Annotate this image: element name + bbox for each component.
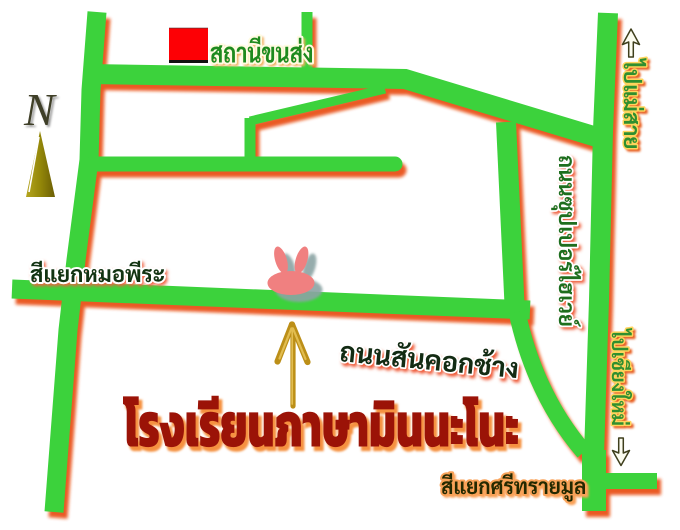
svg-text:N: N [23, 84, 57, 135]
